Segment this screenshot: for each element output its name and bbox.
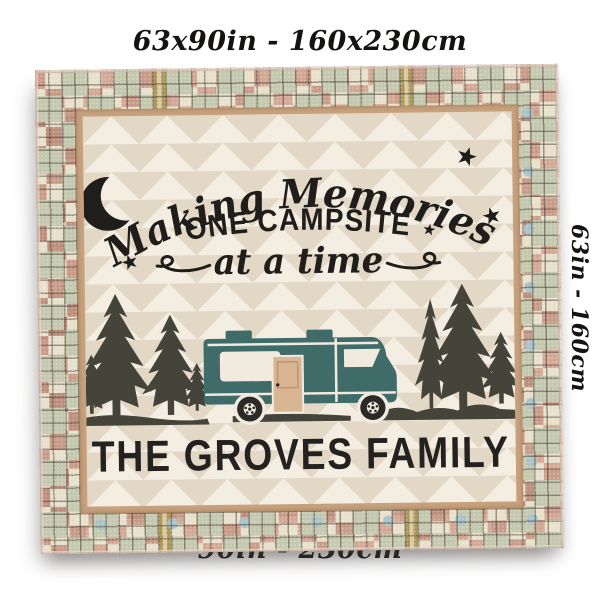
blanket-artwork: Making Memories ONE CAMPSITE at a time <box>83 111 517 506</box>
product-photo: 63x90in - 160x230cm 63in - 160cm 90in - … <box>0 0 600 600</box>
rv-camper-icon <box>203 329 397 426</box>
dimension-label-top: 63x90in - 160x230cm <box>0 26 600 57</box>
quote-line3-text: at a time <box>213 238 383 283</box>
swash-left-icon <box>157 256 210 271</box>
rv-door <box>272 356 303 413</box>
blanket-inner-frame: Making Memories ONE CAMPSITE at a time <box>76 104 524 513</box>
star-icon <box>455 144 479 167</box>
dimension-label-side: 63in - 160cm <box>562 224 592 384</box>
rv-roof-vent <box>226 330 252 339</box>
family-name-text: THE GROVES FAMILY <box>92 428 510 482</box>
swash-right-icon <box>387 253 440 268</box>
blanket: Making Memories ONE CAMPSITE at a time <box>35 64 564 554</box>
rv-roof-vent <box>306 329 332 338</box>
chevron-panel: Making Memories ONE CAMPSITE at a time <box>83 111 517 506</box>
